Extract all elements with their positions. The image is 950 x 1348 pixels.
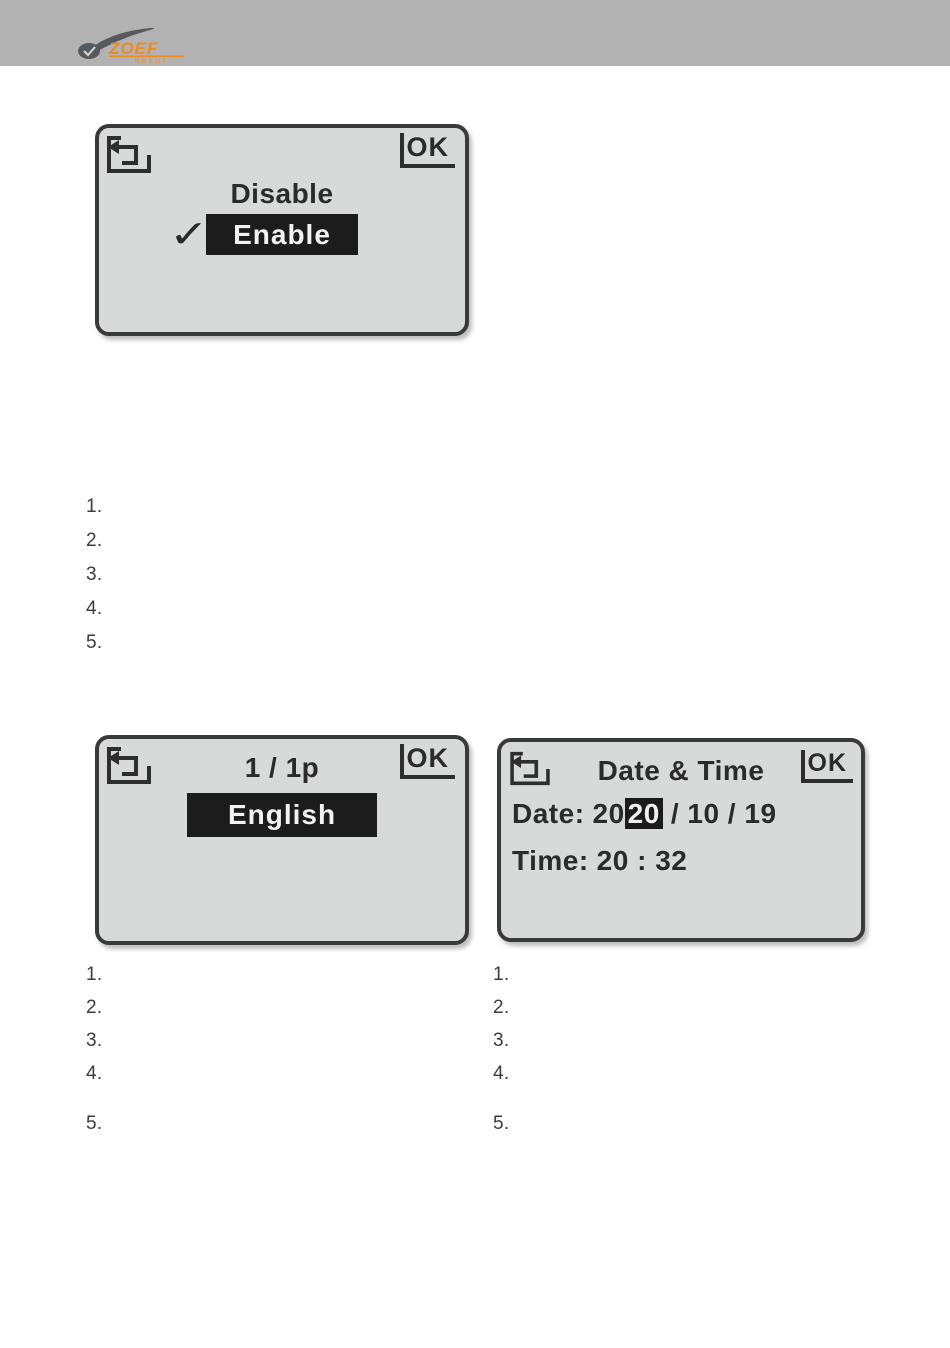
ok-button: OK — [801, 750, 854, 783]
logo-body — [78, 43, 100, 59]
date-row: Date: 2020 / 10 / 19 — [512, 798, 777, 830]
list-item: 3. — [493, 1024, 509, 1057]
back-return-icon — [106, 135, 152, 174]
list-item: 5. — [493, 1107, 509, 1140]
option-disable: Disable — [99, 178, 465, 210]
manual-page: ZOEF ROBOT OK Disable ✓ Enable 1. 2. 3. … — [0, 0, 950, 1348]
list-item: 1. — [86, 958, 102, 991]
list-item: 1. — [493, 958, 509, 991]
screen-enable-select: OK Disable ✓ Enable — [95, 124, 469, 336]
logo-underline — [109, 56, 184, 58]
list-item: 2. — [86, 991, 102, 1024]
list-item: 2. — [86, 524, 102, 558]
steps-list-bottom-left: 1. 2. 3. 4. 5. — [86, 958, 102, 1140]
option-english-selected: English — [187, 793, 377, 837]
steps-list-top: 1. 2. 3. 4. 5. — [86, 490, 102, 660]
steps-list-bottom-right: 1. 2. 3. 4. 5. — [493, 958, 509, 1140]
list-item: 5. — [86, 1107, 102, 1140]
screen-language-select: 1 / 1p OK English — [95, 735, 469, 945]
date-month-day: / 10 / 19 — [671, 798, 777, 830]
list-item: 4. — [86, 1057, 102, 1090]
date-label: Date: — [512, 798, 585, 830]
list-item: 4. — [86, 592, 102, 626]
screen-date-time: Date & Time OK Date: 2020 / 10 / 19 Time… — [497, 738, 865, 942]
list-item: 4. — [493, 1057, 509, 1090]
list-item: 1. — [86, 490, 102, 524]
checkmark-icon: ✓ — [169, 212, 209, 257]
list-item: 3. — [86, 1024, 102, 1057]
time-row: Time: 20 : 32 — [512, 845, 687, 877]
brand-logo-icon: ZOEF ROBOT — [76, 24, 196, 64]
ok-button: OK — [400, 744, 456, 779]
time-value: 20 : 32 — [597, 845, 688, 877]
ok-button: OK — [400, 133, 456, 168]
date-year: 2020 — [593, 798, 663, 830]
logo-sub-text: ROBOT — [135, 59, 168, 64]
date-year-highlighted: 20 — [625, 798, 663, 829]
logo-brand-text: ZOEF — [108, 39, 158, 58]
time-label: Time: — [512, 845, 589, 877]
date-year-prefix: 20 — [593, 798, 625, 829]
list-item: 2. — [493, 991, 509, 1024]
list-item: 3. — [86, 558, 102, 592]
list-item: 5. — [86, 626, 102, 660]
header-bar: ZOEF ROBOT — [0, 0, 950, 66]
option-enable-selected: Enable — [206, 214, 358, 255]
